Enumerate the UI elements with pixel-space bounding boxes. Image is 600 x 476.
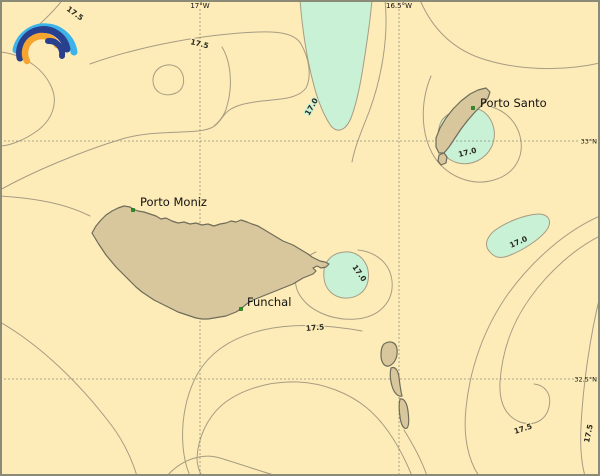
parallel-label: 33°N [581,138,598,146]
place-marker-dot [240,308,243,311]
weather-map-canvas[interactable]: 17°W 16.5°W 33°N 32.5°N 17.5 17.5 17.0 1… [0,0,600,476]
contour-value-label: 17.5 [305,322,324,333]
place-label: Porto Santo [480,96,547,110]
place-label: Funchal [247,295,291,309]
meridian-label: 17°W [190,2,209,10]
place-marker-dot [132,209,135,212]
place-porto-santo: Porto Santo [472,96,547,110]
parallel-label: 32.5°N [574,376,597,384]
islet-porto-santo [438,153,447,165]
place-funchal: Funchal [240,295,292,311]
meridian-label: 16.5°W [386,2,412,10]
place-label: Porto Moniz [140,195,207,209]
map-frame: 17°W 16.5°W 33°N 32.5°N 17.5 17.5 17.0 1… [0,0,600,476]
place-marker-dot [472,107,475,110]
